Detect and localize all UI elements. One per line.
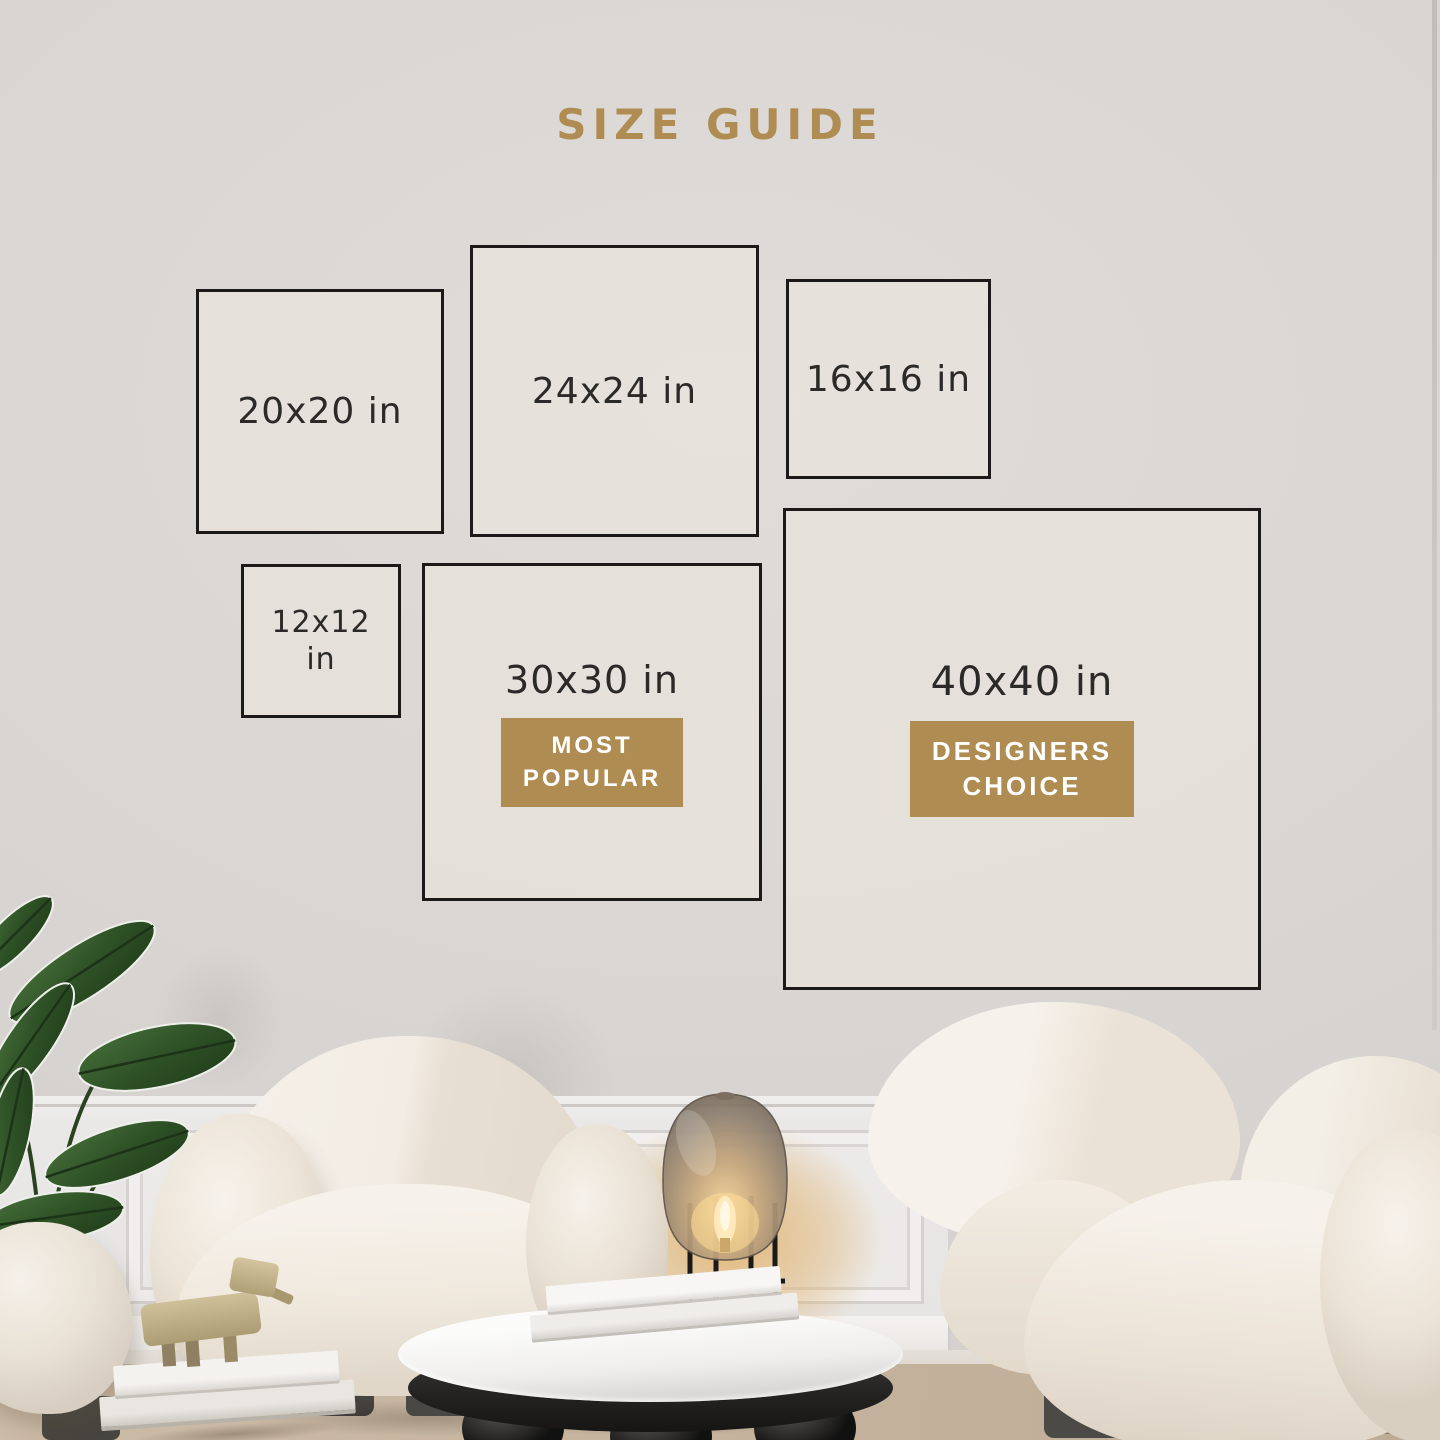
size-label: 40x40 in bbox=[931, 657, 1114, 707]
page-title: SIZE GUIDE bbox=[0, 100, 1440, 149]
size-box-30x30: 30x30 in MOST POPULAR bbox=[422, 563, 762, 901]
size-box-20x20: 20x20 in bbox=[196, 289, 444, 534]
size-label: 20x20 in bbox=[237, 389, 402, 434]
designers-choice-badge: DESIGNERS CHOICE bbox=[910, 721, 1134, 817]
badge-line: DESIGNERS bbox=[932, 734, 1112, 769]
size-guide-mockup: SIZE GUIDE 20x20 in 24x24 in 16x16 in 12… bbox=[0, 0, 1440, 1440]
badge-line: POPULAR bbox=[523, 763, 661, 795]
badge-line: CHOICE bbox=[932, 769, 1112, 804]
size-label: 16x16 in bbox=[806, 357, 971, 402]
size-box-16x16: 16x16 in bbox=[786, 279, 991, 479]
size-box-12x12: 12x12 in bbox=[241, 564, 401, 718]
most-popular-badge: MOST POPULAR bbox=[501, 718, 683, 807]
size-guide-overlay: SIZE GUIDE 20x20 in 24x24 in 16x16 in 12… bbox=[0, 0, 1440, 1440]
size-label: 24x24 in bbox=[532, 369, 697, 414]
size-box-24x24: 24x24 in bbox=[470, 245, 759, 537]
size-box-40x40: 40x40 in DESIGNERS CHOICE bbox=[783, 508, 1261, 990]
badge-line: MOST bbox=[523, 730, 661, 762]
size-label: 12x12 in bbox=[265, 604, 377, 679]
size-label: 30x30 in bbox=[505, 657, 679, 705]
